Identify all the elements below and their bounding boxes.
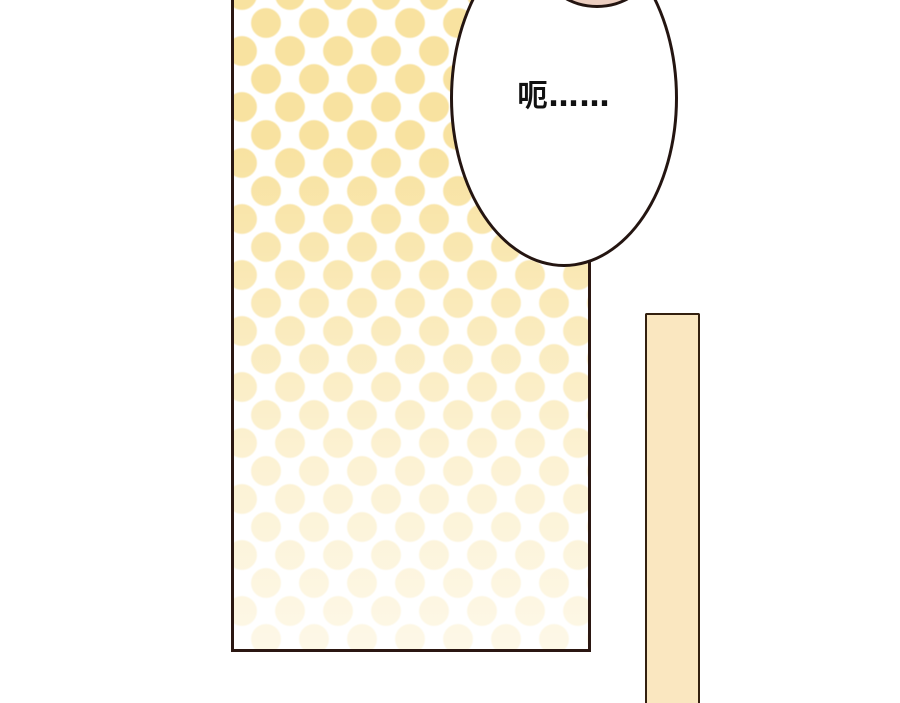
vertical-bar-shape [645, 313, 700, 703]
comic-panel: 呃…… [0, 0, 900, 703]
speech-bubble-text: 呃…… [453, 80, 675, 114]
